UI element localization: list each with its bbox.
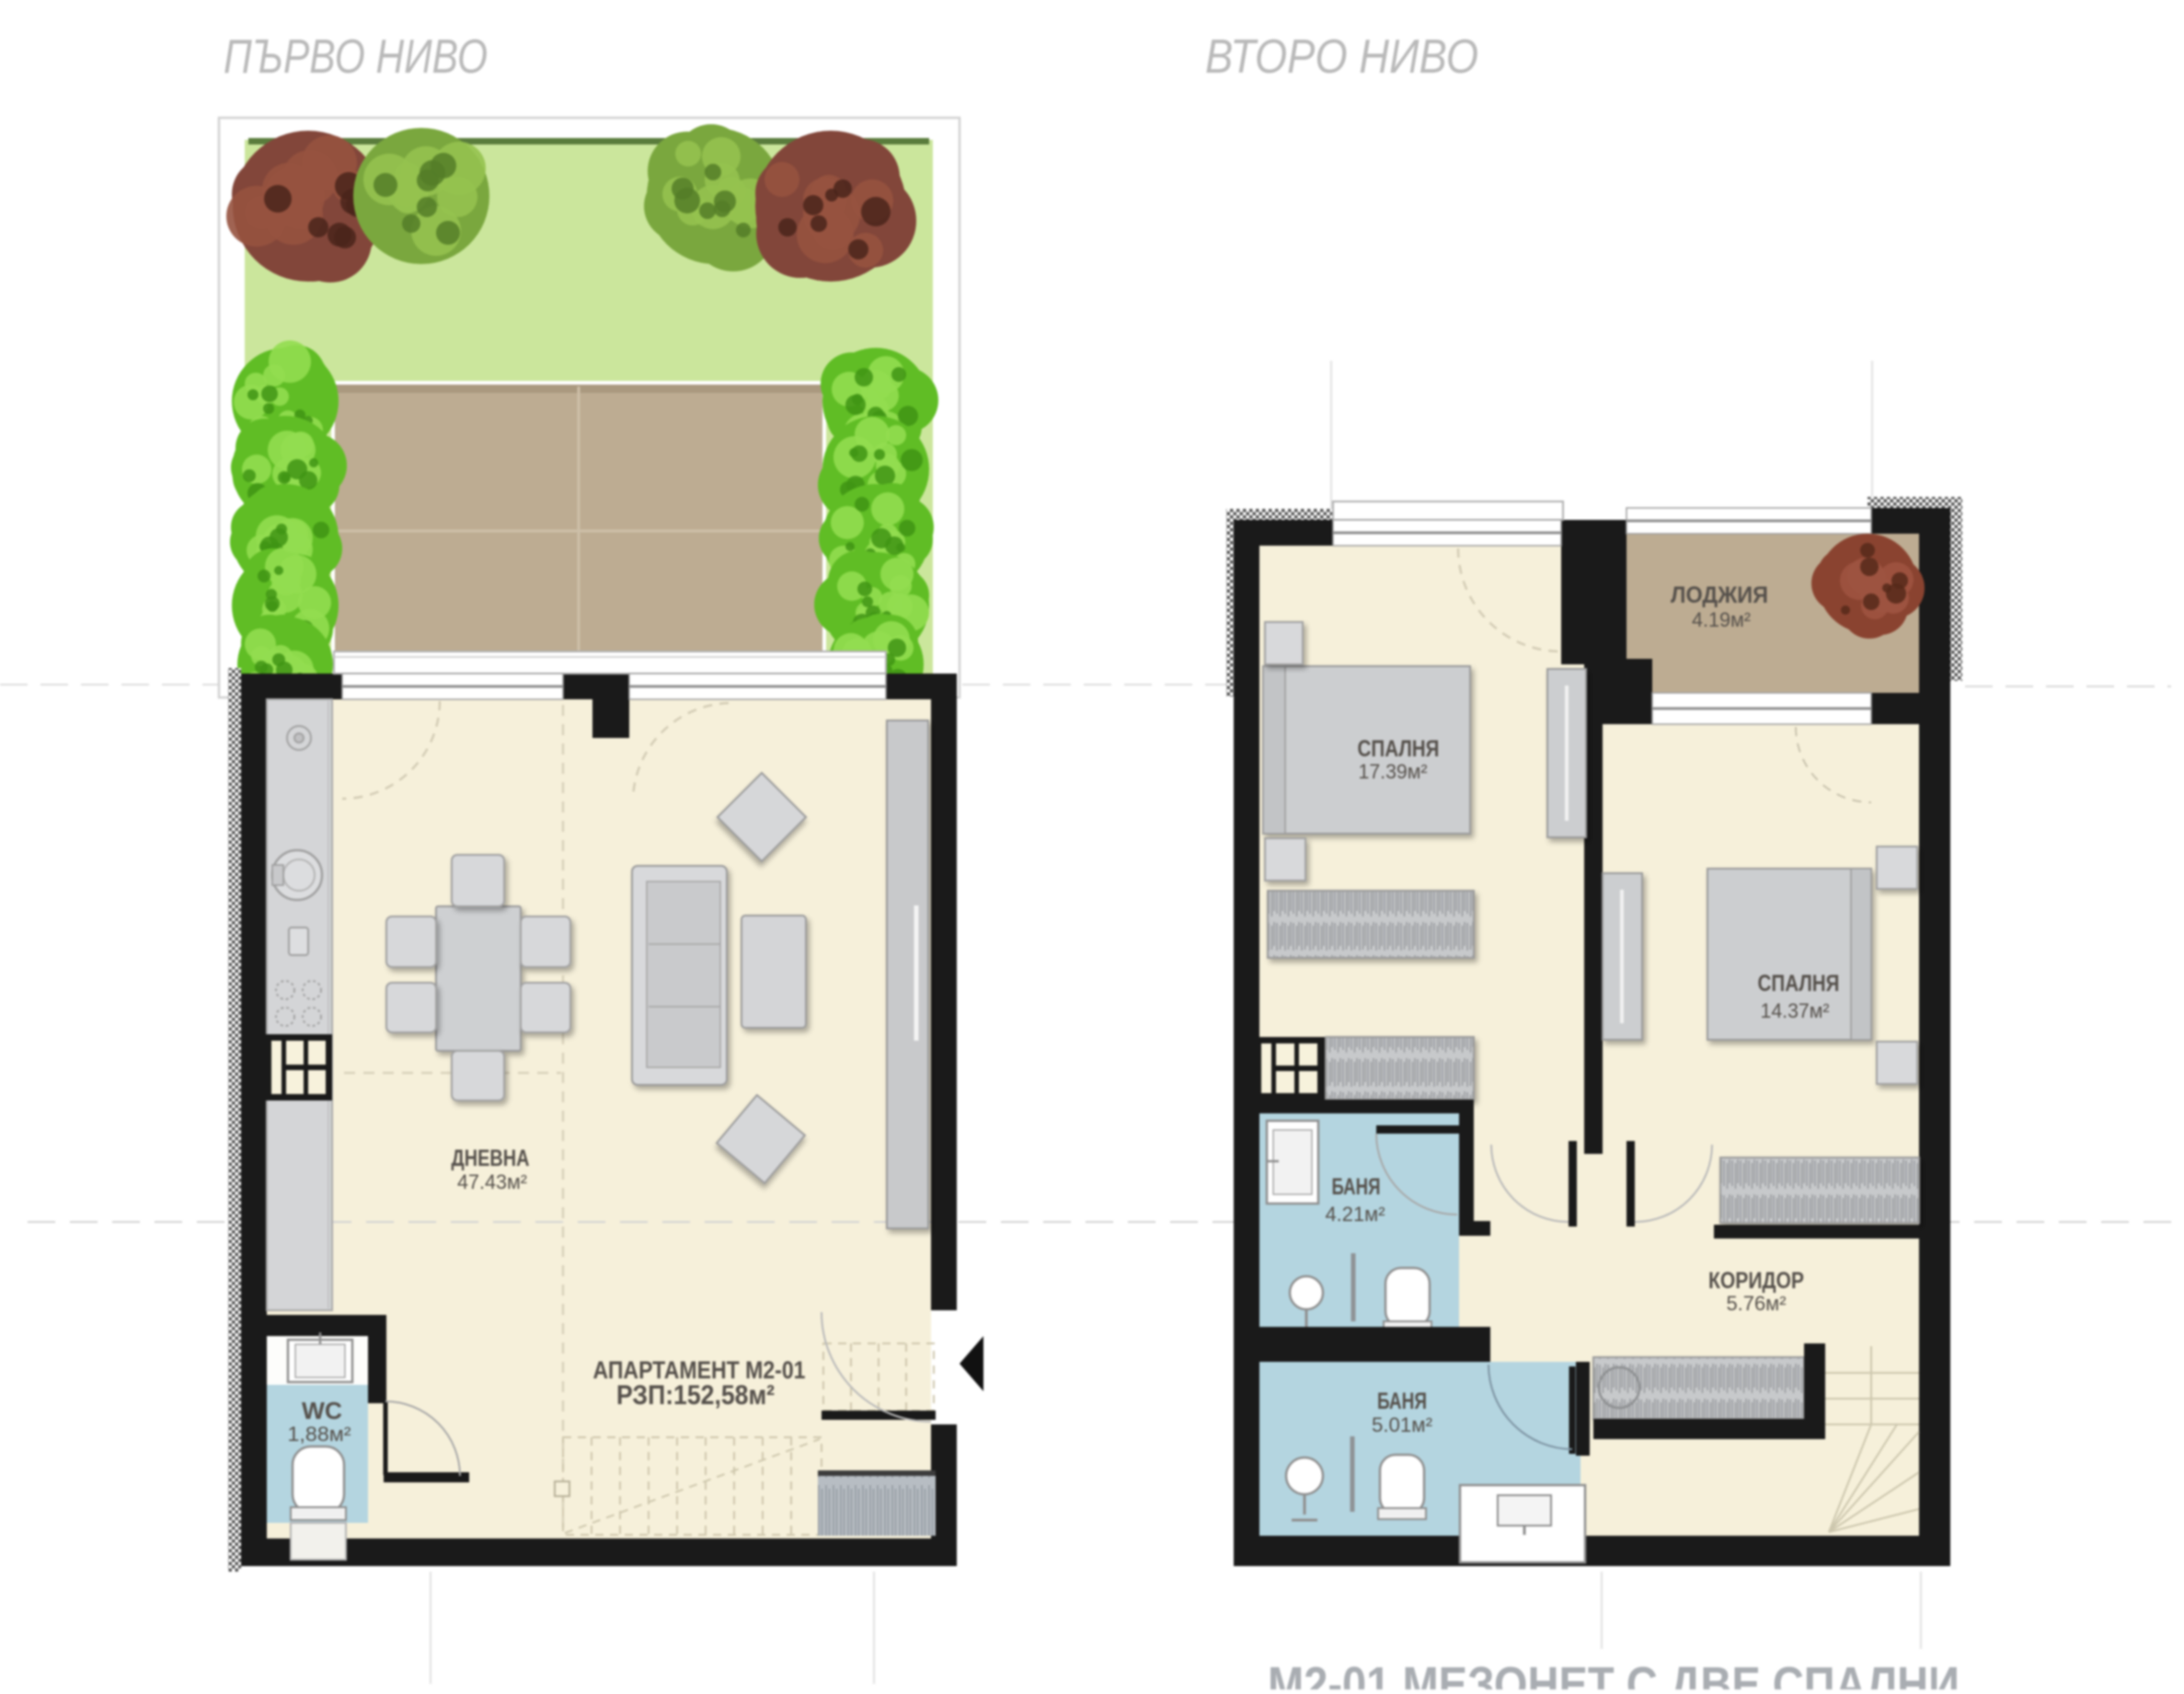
svg-text:5.01м²: 5.01м² xyxy=(1372,1413,1432,1436)
svg-text:ПЪРВО НИВО: ПЪРВО НИВО xyxy=(224,30,488,84)
svg-text:14.37м²: 14.37м² xyxy=(1761,999,1830,1022)
svg-text:БАНЯ: БАНЯ xyxy=(1377,1389,1427,1414)
svg-text:17.39м²: 17.39м² xyxy=(1359,760,1428,783)
svg-text:ЛОДЖИЯ: ЛОДЖИЯ xyxy=(1671,582,1768,608)
svg-text:М2-01 МЕЗОНЕТ С ДВЕ СПАЛНИ: М2-01 МЕЗОНЕТ С ДВЕ СПАЛНИ xyxy=(1268,1657,1960,1689)
svg-text:5.76м²: 5.76м² xyxy=(1727,1292,1787,1315)
svg-text:СПАЛНЯ: СПАЛНЯ xyxy=(1758,971,1840,997)
svg-text:СПАЛНЯ: СПАЛНЯ xyxy=(1358,736,1440,762)
svg-text:ВТОРО НИВО: ВТОРО НИВО xyxy=(1205,30,1478,84)
svg-text:47.43м²: 47.43м² xyxy=(457,1170,527,1193)
svg-text:4.21м²: 4.21м² xyxy=(1326,1203,1385,1226)
svg-text:4.19м²: 4.19м² xyxy=(1692,608,1751,631)
svg-text:ДНЕВНА: ДНЕВНА xyxy=(452,1146,530,1171)
svg-text:1,88м²: 1,88м² xyxy=(288,1423,351,1446)
svg-text:WC: WC xyxy=(302,1397,342,1424)
svg-text:БАНЯ: БАНЯ xyxy=(1332,1174,1381,1200)
svg-text:РЗП:152,58м²: РЗП:152,58м² xyxy=(616,1380,775,1411)
svg-text:КОРИДОР: КОРИДОР xyxy=(1708,1268,1804,1294)
